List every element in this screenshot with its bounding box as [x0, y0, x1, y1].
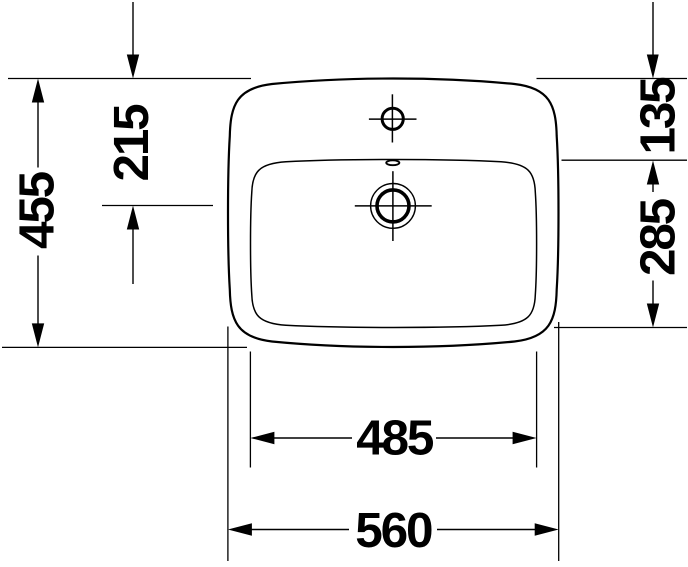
svg-text:485: 485 — [356, 411, 434, 466]
svg-text:285: 285 — [631, 198, 686, 276]
svg-text:135: 135 — [631, 77, 686, 155]
svg-text:215: 215 — [104, 104, 159, 182]
svg-text:455: 455 — [10, 171, 65, 249]
svg-text:560: 560 — [355, 503, 432, 558]
